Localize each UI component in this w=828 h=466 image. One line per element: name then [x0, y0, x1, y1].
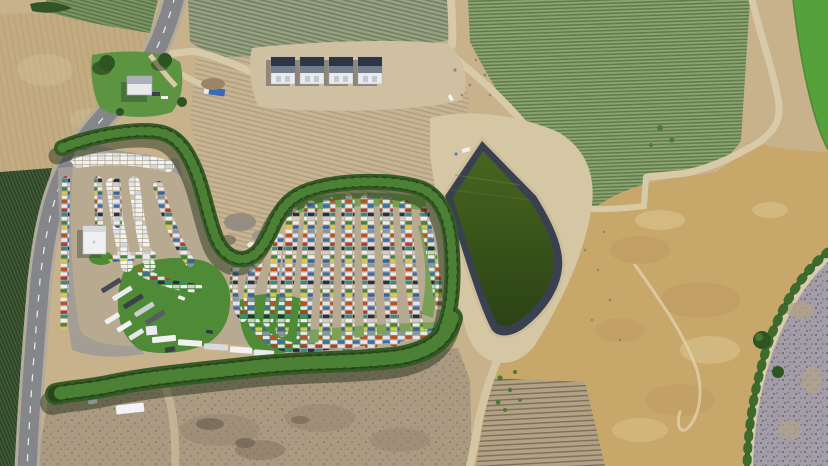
warehouse-building — [324, 57, 353, 86]
aerial-photo — [0, 0, 828, 466]
yard-shed — [146, 325, 158, 335]
aerial-photo-stage — [0, 0, 828, 466]
canal-tree — [753, 331, 771, 349]
warehouse-building — [295, 57, 324, 86]
canal-tree — [772, 366, 784, 378]
dirt-mound — [201, 78, 225, 90]
warehouse-building — [353, 57, 382, 86]
warehouse-building — [266, 57, 295, 86]
sales-office — [77, 226, 106, 258]
warehouse-buildings — [266, 57, 382, 86]
